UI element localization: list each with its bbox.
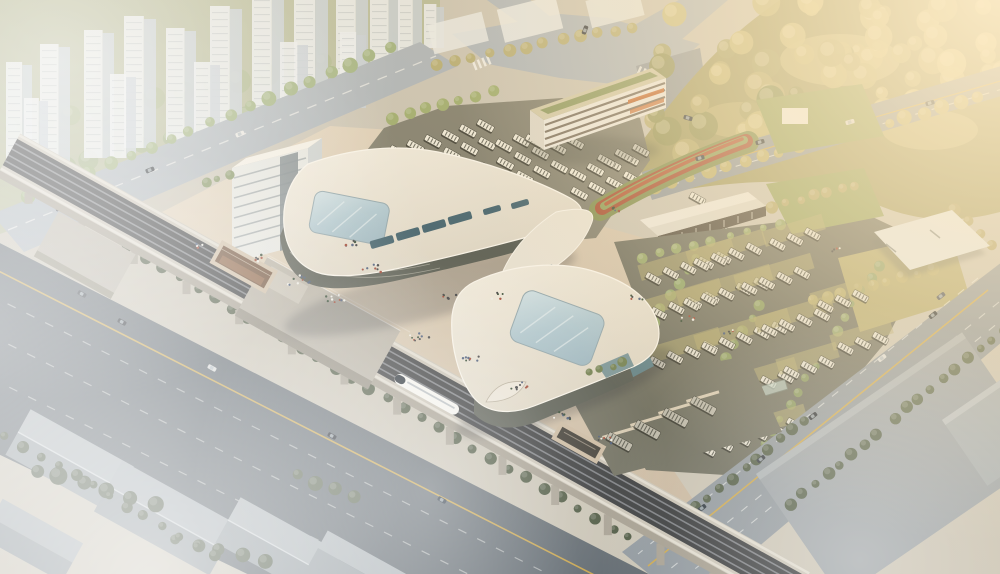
architectural-rendering (0, 0, 1000, 574)
atmosphere (0, 0, 1000, 574)
mist-bottomright (0, 0, 1000, 574)
aerial-rendering-canvas (0, 0, 1000, 574)
